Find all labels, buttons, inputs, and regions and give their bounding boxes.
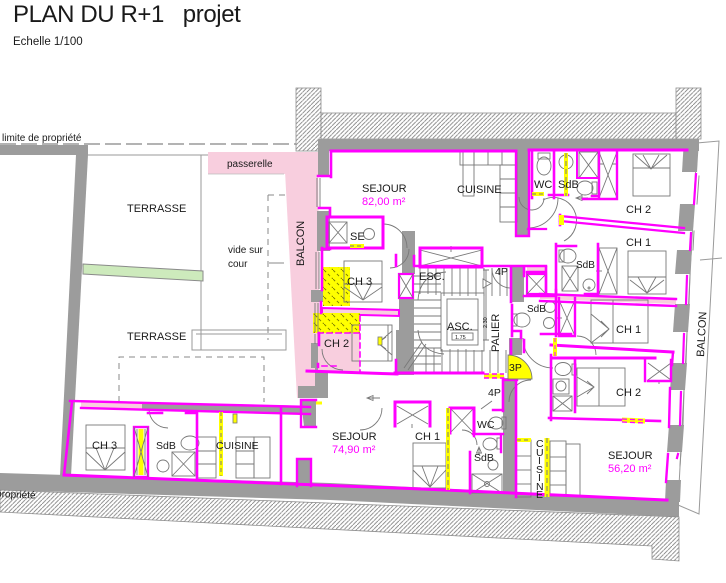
svg-text:E: E (536, 489, 543, 501)
svg-text:74,90 m²: 74,90 m² (332, 444, 376, 456)
svg-text:2.30: 2.30 (483, 317, 489, 328)
svg-text:vide sur: vide sur (228, 245, 264, 256)
svg-text:CUISINE: CUISINE (457, 184, 502, 196)
svg-text:SdB: SdB (474, 452, 494, 464)
svg-text:CH 3: CH 3 (347, 276, 372, 288)
svg-text:3P: 3P (509, 362, 522, 374)
svg-text:SEJOUR: SEJOUR (362, 183, 407, 195)
svg-text:PALIER: PALIER (490, 314, 502, 352)
svg-text:WC: WC (477, 419, 495, 431)
svg-text:WC: WC (534, 179, 552, 191)
svg-text:CH 1: CH 1 (415, 431, 440, 443)
svg-text:CH 2: CH 2 (626, 204, 651, 216)
svg-text:SE: SE (350, 231, 365, 243)
svg-text:cour: cour (228, 259, 248, 270)
svg-text:SEJOUR: SEJOUR (332, 431, 377, 443)
svg-text:ASC.: ASC. (447, 321, 473, 333)
svg-text:56,20 m²: 56,20 m² (608, 463, 652, 475)
svg-text:CH 1: CH 1 (616, 324, 641, 336)
svg-text:ESC.: ESC. (419, 271, 445, 283)
svg-text:limite de propriété: limite de propriété (2, 133, 82, 144)
svg-text:TERRASSE: TERRASSE (127, 203, 186, 215)
svg-text:CUISINE: CUISINE (216, 440, 259, 452)
svg-text:BALCON: BALCON (695, 311, 709, 357)
svg-text:passerelle: passerelle (227, 159, 273, 170)
svg-text:SdB: SdB (527, 304, 546, 315)
svg-text:CH 2: CH 2 (324, 338, 349, 350)
svg-text:BALCON: BALCON (295, 221, 307, 266)
svg-text:Echelle 1/100: Echelle 1/100 (13, 36, 83, 48)
svg-text:SEJOUR: SEJOUR (608, 450, 653, 462)
svg-text:4P: 4P (488, 387, 501, 399)
svg-text:TERRASSE: TERRASSE (127, 331, 186, 343)
svg-text:CH 1: CH 1 (626, 237, 651, 249)
svg-text:SdB: SdB (156, 440, 176, 452)
svg-text:CH 3: CH 3 (92, 440, 117, 452)
svg-text:CH 2: CH 2 (616, 387, 641, 399)
svg-text:SdB: SdB (558, 179, 579, 191)
svg-text:PLAN DU R+1 projet: PLAN DU R+1 projet (13, 1, 241, 28)
svg-text:1.75: 1.75 (455, 335, 466, 341)
svg-text:SdB: SdB (576, 260, 595, 271)
svg-text:82,00 m²: 82,00 m² (362, 196, 406, 208)
svg-text:4P: 4P (495, 266, 508, 278)
